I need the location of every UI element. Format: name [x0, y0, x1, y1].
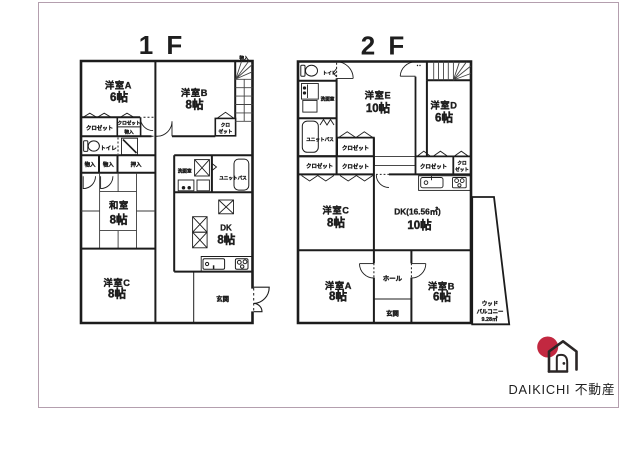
- svg-text:物入: 物入: [124, 128, 134, 135]
- svg-text:クロゼット: クロゼット: [342, 144, 369, 152]
- svg-text:DK: DK: [220, 223, 232, 232]
- svg-text:和室: 和室: [108, 200, 129, 211]
- svg-text:DK(16.56㎡): DK(16.56㎡): [394, 207, 441, 217]
- svg-text:洗面室: 洗面室: [321, 96, 335, 103]
- svg-text:6帖: 6帖: [435, 111, 453, 125]
- svg-text:洗面室: 洗面室: [178, 168, 192, 175]
- svg-text:10帖: 10帖: [407, 218, 432, 232]
- svg-text:1 F: 1 F: [139, 30, 186, 60]
- svg-text:物入: 物入: [239, 55, 249, 62]
- svg-text:9.28㎡: 9.28㎡: [482, 315, 498, 323]
- svg-text:ゼット: ゼット: [455, 166, 469, 173]
- svg-text:ホール: ホール: [383, 275, 403, 283]
- svg-text:押入: 押入: [131, 161, 142, 169]
- svg-text:6帖: 6帖: [433, 290, 451, 304]
- svg-text:洋室A: 洋室A: [325, 280, 352, 291]
- svg-text:8帖: 8帖: [217, 233, 235, 247]
- svg-text:ウッド: ウッド: [482, 300, 498, 308]
- svg-text:クロゼット: クロゼット: [118, 119, 141, 126]
- svg-text:トイレ: トイレ: [100, 145, 117, 152]
- svg-text:物入: 物入: [85, 161, 96, 169]
- svg-text:洋室A: 洋室A: [105, 80, 132, 91]
- svg-text:洋室D: 洋室D: [430, 100, 457, 111]
- svg-text:クロゼット: クロゼット: [306, 162, 333, 170]
- svg-text:8帖: 8帖: [329, 289, 347, 303]
- svg-text:8帖: 8帖: [110, 213, 128, 227]
- svg-text:洋室C: 洋室C: [322, 205, 349, 216]
- svg-text:物入: 物入: [103, 161, 114, 169]
- svg-text:玄関: 玄関: [216, 294, 229, 303]
- svg-text:バルコニー: バルコニー: [477, 309, 504, 316]
- svg-text:洋室B: 洋室B: [181, 87, 208, 98]
- svg-text:洋室B: 洋室B: [428, 281, 455, 292]
- svg-text:ゼット: ゼット: [219, 128, 233, 135]
- svg-text:クロ: クロ: [221, 122, 231, 129]
- svg-text:クロゼット: クロゼット: [420, 163, 447, 171]
- svg-text:2 F: 2 F: [361, 31, 408, 61]
- svg-text:10帖: 10帖: [366, 101, 391, 115]
- svg-text:8帖: 8帖: [327, 216, 345, 230]
- svg-text:6帖: 6帖: [110, 90, 128, 104]
- svg-text:8帖: 8帖: [108, 287, 126, 301]
- svg-text:8帖: 8帖: [186, 98, 204, 112]
- svg-text:クロ: クロ: [457, 160, 467, 167]
- svg-text:玄関: 玄関: [386, 309, 399, 318]
- svg-text:洋室C: 洋室C: [103, 277, 130, 288]
- svg-text:クロゼット: クロゼット: [342, 163, 369, 171]
- svg-text:洋室E: 洋室E: [365, 90, 392, 101]
- svg-text:クロゼット: クロゼット: [86, 124, 113, 132]
- svg-text:DAIKICHI 不動産: DAIKICHI 不動産: [508, 382, 615, 397]
